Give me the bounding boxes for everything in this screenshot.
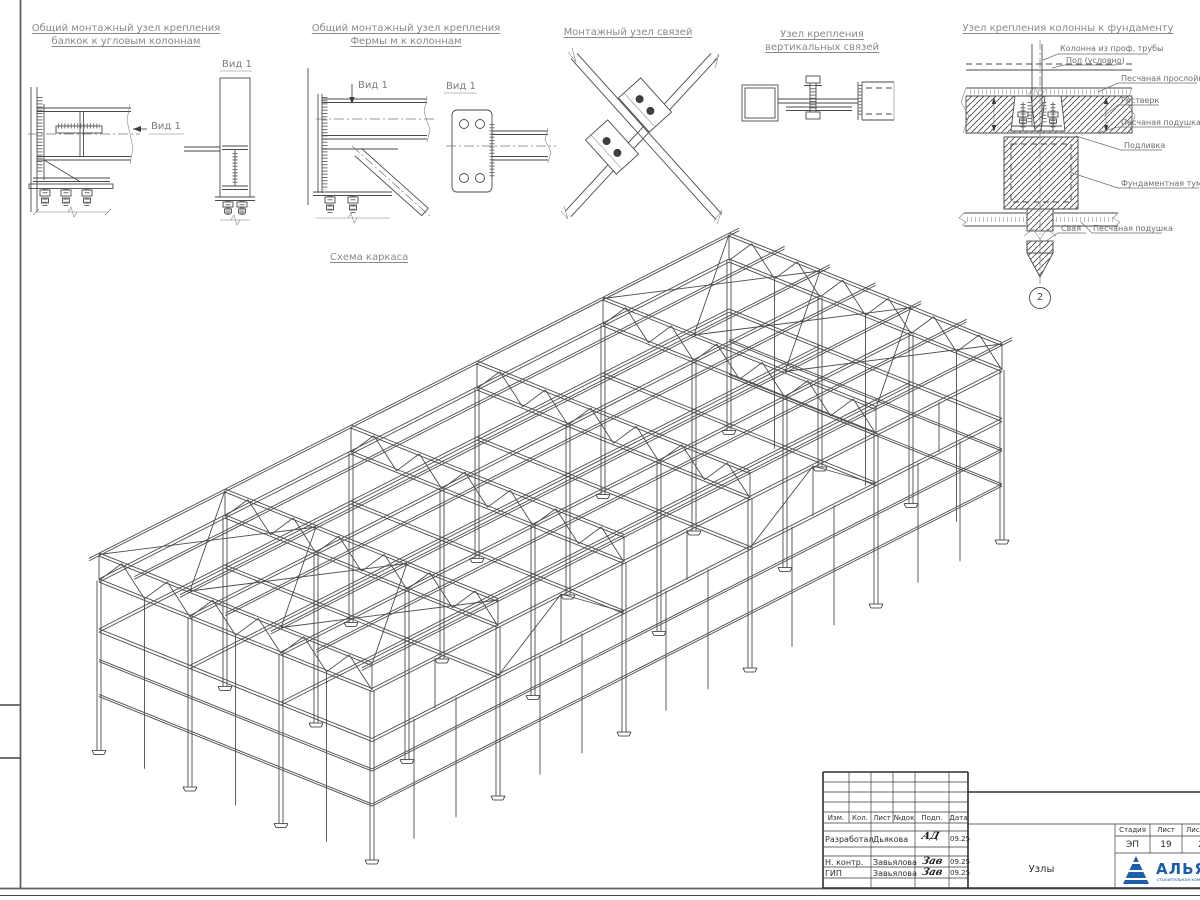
detail-2-title-line2: Фермы м к колоннам: [306, 35, 506, 48]
tb-name-ncontrol: Завьялова: [873, 858, 917, 867]
detail-1-title-line1: Общий монтажный узел крепления: [26, 22, 226, 35]
tb-header-list: Лист: [871, 814, 893, 822]
tb-signature-ncontrol: Зав: [921, 856, 944, 867]
node-marker-2: 2: [1029, 292, 1051, 303]
tb-signature-developer: АД: [921, 831, 941, 842]
tb-sheets-header: Лис: [1186, 826, 1200, 834]
tb-header-data: Дата: [949, 814, 968, 822]
detail-2-drawing: [308, 68, 436, 223]
logo-triangle-icon: [1123, 856, 1149, 884]
detail-1-title-line2: балкок к угловым колоннам: [26, 35, 226, 48]
detail-2-title-line1: Общий монтажный узел крепления: [306, 22, 506, 35]
detail-1-view1-drawing: [184, 71, 255, 225]
detail-3-drawing: [561, 48, 722, 224]
tb-name-gip: Завьялова: [873, 869, 917, 878]
callout-pile-cap: Ростверк: [1121, 96, 1159, 105]
callout-sand-cushion-1: Песчаная подушка: [1121, 118, 1200, 127]
detail-4-title: Узел крепления вертикальных связей: [752, 28, 892, 54]
frame-scheme-drawing: [89, 228, 1012, 864]
view-label-1-side: Вид 1: [222, 59, 252, 70]
view-label-2-front: Вид 1: [358, 80, 388, 91]
drawing-sheet: Общий монтажный узел крепления балкок к …: [0, 0, 1200, 900]
tb-header-kol: Кол.: [849, 814, 871, 822]
detail-2-title: Общий монтажный узел крепления Фермы м к…: [306, 22, 506, 48]
view-label-2-side: Вид 1: [446, 81, 476, 92]
callout-sand-layer: Песчаная прослойка: [1121, 74, 1200, 83]
detail-1-title: Общий монтажный узел крепления балкок к …: [26, 22, 226, 48]
company-logo-text: АЛЬЯН: [1156, 860, 1200, 878]
detail-4-title-line1: Узел крепления: [752, 28, 892, 41]
company-logo-subtext: строительная компания: [1157, 878, 1200, 883]
callout-column-tube: Колонна из проф. трубы: [1060, 44, 1163, 53]
tb-date-developer: 09.25: [950, 835, 970, 843]
tb-role-ncontrol: Н. контр.: [825, 858, 863, 867]
callout-foundation-block: Фундаментная тумба: [1121, 179, 1200, 188]
callout-grout: Подливка: [1124, 141, 1165, 150]
view-label-1-front: Вид 1: [151, 121, 181, 132]
detail-3-title: Монтажный узел связей: [558, 26, 698, 39]
tb-sheet-header: Лист: [1150, 826, 1182, 834]
tb-header-podp: Подп.: [915, 814, 949, 822]
detail-1-drawing: [28, 87, 184, 217]
detail-4-title-line2: вертикальных связей: [752, 41, 892, 54]
tb-name-developer: Дьякова: [873, 835, 908, 844]
linework-svg: [0, 0, 1200, 900]
callout-pile: Свая: [1061, 224, 1081, 233]
scheme-title: Схема каркаса: [330, 252, 408, 263]
tb-header-ndok: №док: [893, 814, 915, 822]
tb-role-gip: ГИП: [825, 869, 842, 878]
tb-role-developer: Разработал: [825, 835, 873, 844]
detail-2-view1-drawing: [444, 93, 556, 192]
detail-4-drawing: [742, 76, 894, 121]
tb-header-izm: Изм.: [823, 814, 849, 822]
tb-stage-header: Стадия: [1115, 826, 1150, 834]
tb-doc-title: Узлы: [968, 864, 1115, 875]
detail-5-title: Узел крепления колонны к фундаменту: [958, 22, 1178, 35]
detail-5-title-line1: Узел крепления колонны к фундаменту: [958, 22, 1178, 35]
callout-sand-cushion-2: Песчаная подушка: [1093, 224, 1173, 233]
detail-3-title-line1: Монтажный узел связей: [558, 26, 698, 39]
tb-signature-gip: Зав: [921, 867, 944, 878]
tb-sheet-value: 19: [1150, 840, 1182, 850]
tb-stage-value: ЭП: [1115, 840, 1150, 850]
callout-floor: Пол (условно): [1066, 56, 1125, 65]
tb-sheets-value: 2: [1186, 840, 1200, 850]
